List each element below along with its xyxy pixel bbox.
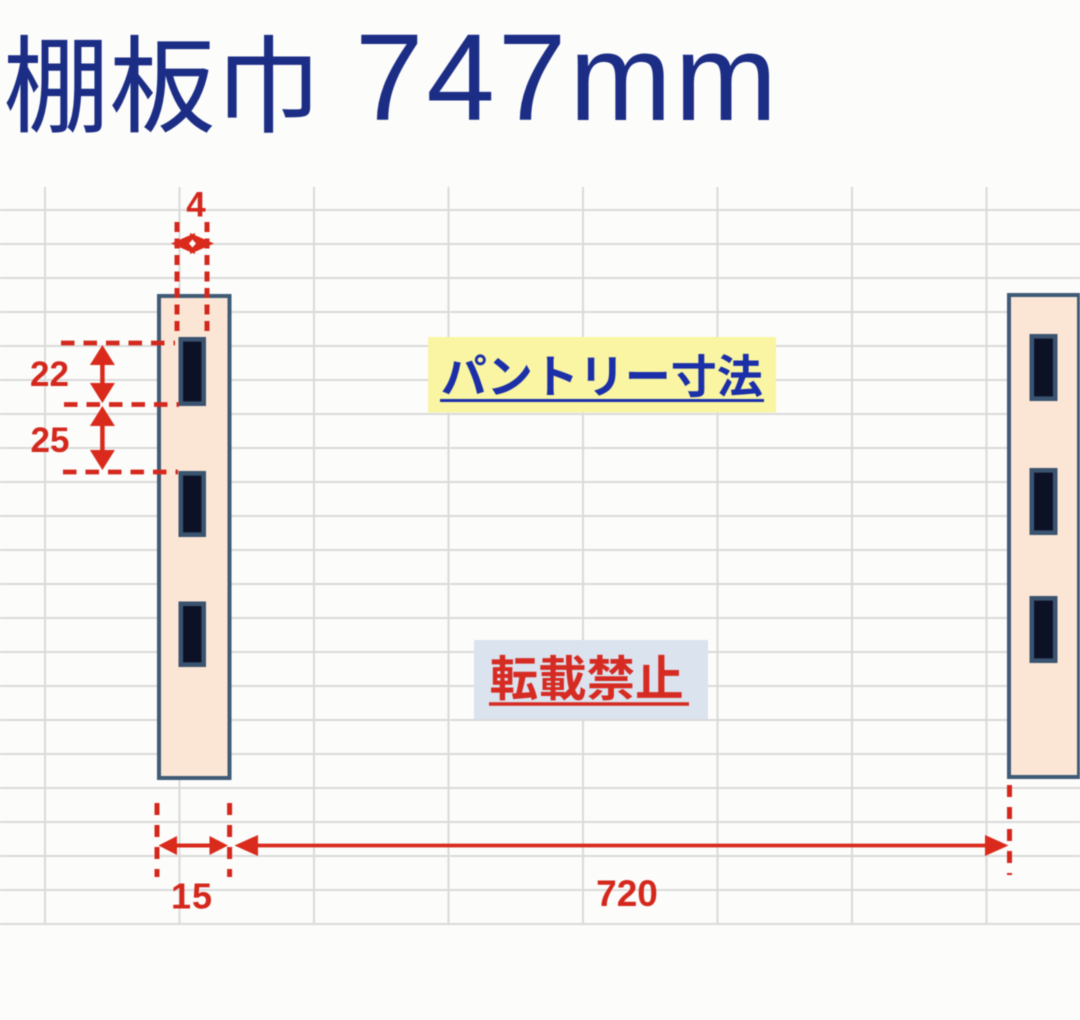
svg-text:25: 25 bbox=[31, 421, 70, 460]
svg-text:15: 15 bbox=[171, 876, 213, 917]
svg-text:747mm: 747mm bbox=[355, 10, 780, 147]
svg-text:720: 720 bbox=[596, 873, 658, 914]
svg-text:22: 22 bbox=[30, 355, 69, 394]
svg-text:4: 4 bbox=[186, 186, 206, 225]
